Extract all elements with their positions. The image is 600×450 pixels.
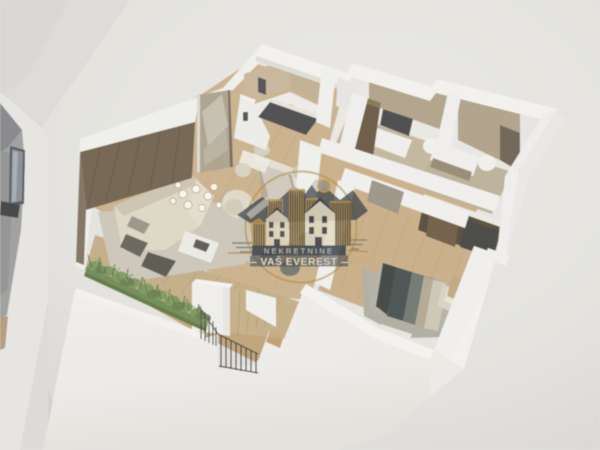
svg-text:— VAŠ EVEREST —: — VAŠ EVEREST — xyxy=(246,255,352,268)
svg-text:NEKRETNINE: NEKRETNINE xyxy=(264,246,334,255)
